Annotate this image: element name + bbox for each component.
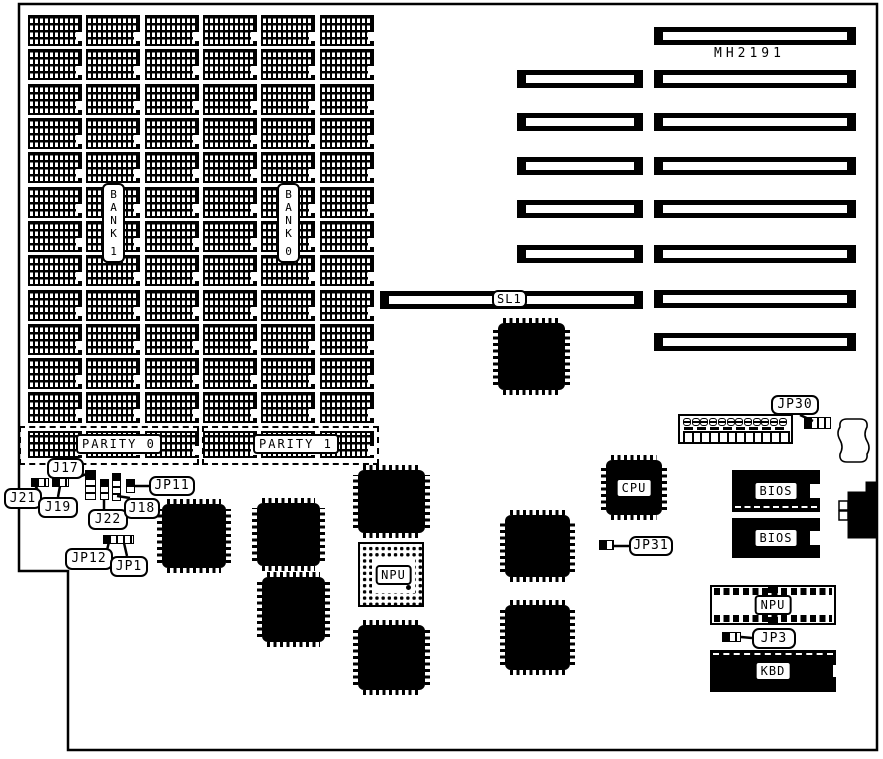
header-contact — [744, 418, 752, 426]
qfp-pins — [363, 620, 420, 625]
memory-chip — [320, 255, 374, 286]
isa-slot — [517, 157, 643, 175]
memory-chip — [203, 290, 257, 321]
chip-notch — [193, 409, 199, 418]
chip-notch — [309, 204, 315, 213]
chip-notch — [251, 204, 257, 213]
memory-chip — [86, 15, 140, 46]
sl1-label: SL1 — [492, 290, 527, 308]
qfp-pins — [252, 508, 257, 561]
chip-notch — [193, 272, 199, 281]
memory-chip — [320, 221, 374, 252]
chip-notch — [134, 238, 140, 247]
isa-slot — [654, 27, 856, 45]
qfp-pins — [167, 499, 221, 504]
header-divider — [684, 427, 787, 430]
memory-chip — [28, 255, 82, 286]
chip-notch — [309, 135, 315, 144]
parity-chip — [28, 431, 82, 458]
memory-chip — [320, 118, 374, 149]
isa-slot — [654, 70, 856, 88]
isa-slot — [654, 113, 856, 131]
jumper-j21 — [31, 478, 49, 487]
parity-chip — [203, 431, 257, 458]
bios-chip: BIOS — [732, 518, 820, 558]
memory-chip — [145, 290, 199, 321]
qfp-chip — [498, 323, 565, 390]
memory-chip — [145, 118, 199, 149]
callout-line-jp1 — [124, 543, 127, 556]
qfp-pins — [320, 508, 325, 561]
memory-chip — [261, 84, 315, 115]
header-contact — [761, 418, 769, 426]
qfp-pins — [267, 642, 320, 647]
callout-j21: J21 — [4, 488, 42, 509]
chip-notch — [251, 101, 257, 110]
memory-chip — [261, 152, 315, 183]
parity1-label: PARITY 1 — [253, 434, 339, 454]
chip-notch — [368, 135, 374, 144]
chip-notch — [193, 446, 199, 455]
memory-chip — [320, 84, 374, 115]
chip-notch — [76, 101, 82, 110]
slot-stripe — [663, 32, 847, 40]
chip-notch — [251, 307, 257, 316]
kbd-notch — [833, 665, 838, 677]
chip-notch — [76, 375, 82, 384]
qfp-pins — [500, 520, 505, 572]
npu-socket: NPU — [358, 542, 424, 607]
slot-stripe — [663, 75, 847, 83]
jumper-jp31 — [599, 540, 614, 550]
jumper-j22 — [100, 479, 109, 500]
chip-notch — [368, 409, 374, 418]
chip-notch — [309, 307, 315, 316]
chip-notch — [134, 341, 140, 350]
chip-notch — [309, 169, 315, 178]
memory-chip — [203, 324, 257, 355]
chip-notch — [76, 66, 82, 75]
slot-stripe — [526, 118, 634, 126]
callout-jp1: JP1 — [110, 556, 148, 577]
memory-chip — [320, 15, 374, 46]
slot-stripe — [526, 250, 634, 258]
memory-chip — [320, 324, 374, 355]
chip-notch — [193, 169, 199, 178]
chip-notch — [134, 409, 140, 418]
jumper-jp12-jp1 — [103, 535, 134, 544]
qfp-pins — [257, 582, 262, 637]
memory-chip — [145, 358, 199, 389]
bios-label: BIOS — [754, 528, 799, 548]
memory-chip — [203, 152, 257, 183]
callout-j17: J17 — [47, 458, 84, 479]
slot-stripe — [663, 338, 847, 346]
memory-chip — [28, 49, 82, 80]
callout-jp11: JP11 — [149, 476, 195, 496]
memory-chip — [261, 392, 315, 423]
memory-chip — [28, 221, 82, 252]
chip-notch — [193, 101, 199, 110]
chip-notch — [134, 66, 140, 75]
memory-chip — [28, 290, 82, 321]
chip-notch — [368, 375, 374, 384]
chip-notch — [368, 272, 374, 281]
qfp-pins — [510, 670, 565, 675]
header-contact — [753, 418, 761, 426]
qfp-pins — [503, 318, 560, 323]
memory-chip — [203, 392, 257, 423]
qfp-chip — [358, 470, 425, 533]
callout-line-jp3 — [741, 637, 752, 638]
memory-chip — [145, 49, 199, 80]
slot-stripe — [663, 118, 847, 126]
slot-stripe — [663, 295, 847, 303]
qfp-pins — [570, 520, 575, 572]
npu-label: NPU — [375, 565, 412, 585]
qfp-pins — [570, 610, 575, 665]
memory-chip — [28, 118, 82, 149]
chip-notch — [76, 32, 82, 41]
memory-chip — [203, 358, 257, 389]
qfp-pins — [353, 475, 358, 528]
chip-notch — [76, 135, 82, 144]
qfp-pins — [363, 465, 420, 470]
memory-chip — [28, 84, 82, 115]
qfp-pins — [425, 475, 430, 528]
callout-j18: J18 — [124, 498, 160, 519]
memory-chip — [145, 221, 199, 252]
qfp-chip — [505, 605, 570, 670]
header-contact — [683, 418, 691, 426]
memory-chip — [28, 15, 82, 46]
chip-notch — [251, 66, 257, 75]
bios-notch — [810, 484, 822, 498]
qfp-pins — [510, 510, 565, 515]
memory-chip — [28, 152, 82, 183]
slot-stripe — [526, 162, 634, 170]
kbd-connector-pin — [839, 501, 848, 510]
bios-window-line — [735, 506, 817, 508]
memory-chip — [145, 392, 199, 423]
chip-notch — [76, 341, 82, 350]
chip-notch — [309, 32, 315, 41]
chip-notch — [251, 272, 257, 281]
memory-chip — [28, 187, 82, 218]
chip-notch — [76, 409, 82, 418]
kbd-connector-pin — [839, 511, 848, 520]
memory-chip — [145, 15, 199, 46]
kbd-chip: KBD — [710, 650, 836, 692]
chip-notch — [251, 341, 257, 350]
kbd-window-line — [713, 653, 833, 655]
chip-notch — [193, 307, 199, 316]
chip-notch — [251, 409, 257, 418]
memory-chip — [28, 392, 82, 423]
qfp-pins — [611, 455, 657, 460]
slot-stripe — [526, 205, 634, 213]
qfp-pins — [601, 465, 606, 510]
callout-line-j19 — [58, 486, 60, 497]
qfp-chip — [162, 504, 226, 568]
chip-notch — [193, 135, 199, 144]
chip-notch — [251, 32, 257, 41]
chip-notch — [76, 307, 82, 316]
qfp-pins — [363, 533, 420, 538]
chip-notch — [368, 101, 374, 110]
isa-slot — [517, 245, 643, 263]
isa-slot — [654, 245, 856, 263]
chip-notch — [134, 101, 140, 110]
chip-notch — [134, 169, 140, 178]
header-contact — [692, 418, 700, 426]
jumper-j17 — [85, 470, 96, 500]
chip-notch — [251, 375, 257, 384]
slot-stripe — [526, 75, 634, 83]
qfp-pins — [325, 582, 330, 637]
bios-notch — [810, 531, 822, 545]
memory-chip — [203, 221, 257, 252]
chip-notch — [76, 238, 82, 247]
chip-notch — [251, 135, 257, 144]
callout-jp30: JP30 — [771, 395, 819, 415]
chip-notch — [134, 375, 140, 384]
header-pin — [779, 431, 790, 444]
qfp-pins — [267, 572, 320, 577]
chip-notch — [134, 307, 140, 316]
chip-notch — [76, 204, 82, 213]
chip-notch — [309, 66, 315, 75]
memory-chip — [320, 290, 374, 321]
chip-notch — [76, 169, 82, 178]
header-contact — [779, 418, 787, 426]
npu-socket-label: NPU — [755, 595, 792, 615]
qfp-pins — [493, 328, 498, 385]
memory-chip — [261, 358, 315, 389]
memory-chip — [145, 84, 199, 115]
memory-chip — [320, 392, 374, 423]
memory-chip — [320, 152, 374, 183]
memory-chip — [320, 187, 374, 218]
isa-slot — [654, 200, 856, 218]
kbd-connector — [848, 482, 877, 538]
memory-chip — [261, 290, 315, 321]
memory-chip — [86, 152, 140, 183]
pin1-dot — [406, 585, 411, 590]
header-contact — [770, 418, 778, 426]
parity0-label: PARITY 0 — [76, 434, 162, 454]
qfp-pins — [500, 610, 505, 665]
callout-j22: J22 — [88, 509, 128, 530]
jumper-jp11 — [126, 479, 135, 493]
qfp-pins — [611, 515, 657, 520]
socket-tab-top — [768, 586, 778, 593]
cpu-chip: CPU — [606, 460, 662, 515]
slot-stripe — [663, 205, 847, 213]
isa-slot — [654, 333, 856, 351]
isa-slot — [517, 70, 643, 88]
memory-chip — [320, 49, 374, 80]
qfp-pins — [226, 509, 231, 563]
header-contact — [718, 418, 726, 426]
npu-socket-cavity: NPU — [372, 557, 415, 593]
motherboard-diagram: MH2191 SL1 PARITY 0 PARITY 1 BANK1 BANK0… — [0, 0, 883, 759]
chip-notch — [134, 272, 140, 281]
memory-chip — [86, 118, 140, 149]
jumper-j19 — [52, 478, 69, 487]
memory-chip — [261, 49, 315, 80]
qfp-pins — [425, 630, 430, 685]
memory-chip — [203, 49, 257, 80]
chip-notch — [251, 169, 257, 178]
npu-dip-socket: NPU — [710, 585, 836, 625]
chip-notch — [193, 341, 199, 350]
memory-chip — [203, 84, 257, 115]
qfp-pins — [510, 577, 565, 582]
memory-chip — [86, 290, 140, 321]
qfp-pins — [262, 498, 315, 503]
qfp-pins — [662, 465, 667, 510]
chip-notch — [309, 375, 315, 384]
qfp-pins — [565, 328, 570, 385]
bios-label: BIOS — [754, 481, 799, 501]
memory-chip — [86, 392, 140, 423]
kbd-label: KBD — [755, 661, 792, 681]
memory-chip — [28, 324, 82, 355]
memory-chip — [203, 187, 257, 218]
jumper-jp30 — [804, 417, 831, 429]
chip-notch — [368, 341, 374, 350]
qfp-pins — [510, 600, 565, 605]
memory-chip — [320, 358, 374, 389]
qfp-pins — [503, 390, 560, 395]
slot-stripe — [663, 162, 847, 170]
memory-chip — [86, 84, 140, 115]
chip-notch — [368, 32, 374, 41]
chip-notch — [251, 238, 257, 247]
qfp-pins — [167, 568, 221, 573]
chip-notch — [134, 204, 140, 213]
chip-notch — [309, 238, 315, 247]
memory-chip — [145, 255, 199, 286]
memory-chip — [145, 187, 199, 218]
memory-chip — [86, 49, 140, 80]
isa-slot — [654, 157, 856, 175]
callout-jp12: JP12 — [65, 548, 113, 570]
chip-notch — [193, 204, 199, 213]
chip-notch — [193, 66, 199, 75]
chip-notch — [76, 272, 82, 281]
isa-slot — [654, 290, 856, 308]
jumper-jp3 — [722, 632, 741, 642]
memory-chip — [145, 152, 199, 183]
chip-notch — [309, 341, 315, 350]
qfp-chip — [257, 503, 320, 566]
memory-chip — [28, 358, 82, 389]
memory-chip — [203, 118, 257, 149]
chip-notch — [134, 32, 140, 41]
bios-chip: BIOS — [732, 470, 820, 512]
callout-jp3: JP3 — [752, 628, 796, 649]
memory-chip — [145, 324, 199, 355]
isa-slot — [517, 200, 643, 218]
callout-jp31: JP31 — [629, 536, 673, 556]
chip-notch — [368, 169, 374, 178]
jumper-j18 — [112, 473, 121, 501]
memory-chip — [203, 255, 257, 286]
memory-chip — [86, 358, 140, 389]
chip-notch — [193, 375, 199, 384]
memory-chip — [203, 15, 257, 46]
battery — [838, 419, 869, 462]
header-contact — [709, 418, 717, 426]
header-contact — [727, 418, 735, 426]
chip-notch — [368, 238, 374, 247]
chip-notch — [309, 272, 315, 281]
memory-chip — [261, 118, 315, 149]
isa-slot — [517, 113, 643, 131]
cpu-label: CPU — [616, 478, 653, 498]
chip-notch — [368, 204, 374, 213]
chip-notch — [368, 446, 374, 455]
qfp-chip — [505, 515, 570, 577]
bank1-label: BANK1 — [102, 183, 125, 263]
bank0-label: BANK0 — [277, 183, 300, 263]
memory-chip — [86, 324, 140, 355]
memory-chip — [261, 15, 315, 46]
header-contact — [700, 418, 708, 426]
qfp-pins — [363, 690, 420, 695]
memory-chip — [261, 324, 315, 355]
chip-notch — [309, 409, 315, 418]
header-block — [678, 414, 793, 444]
qfp-pins — [353, 630, 358, 685]
slot-stripe — [663, 250, 847, 258]
chip-notch — [309, 101, 315, 110]
model-label: MH2191 — [714, 46, 785, 61]
header-contact — [735, 418, 743, 426]
chip-notch — [134, 135, 140, 144]
chip-notch — [368, 66, 374, 75]
qfp-pins — [262, 566, 315, 571]
callout-j19: J19 — [38, 497, 78, 518]
chip-notch — [193, 32, 199, 41]
socket-tab-bottom — [768, 617, 778, 624]
qfp-chip — [262, 577, 325, 642]
chip-notch — [368, 307, 374, 316]
qfp-chip — [358, 625, 425, 690]
chip-notch — [193, 238, 199, 247]
